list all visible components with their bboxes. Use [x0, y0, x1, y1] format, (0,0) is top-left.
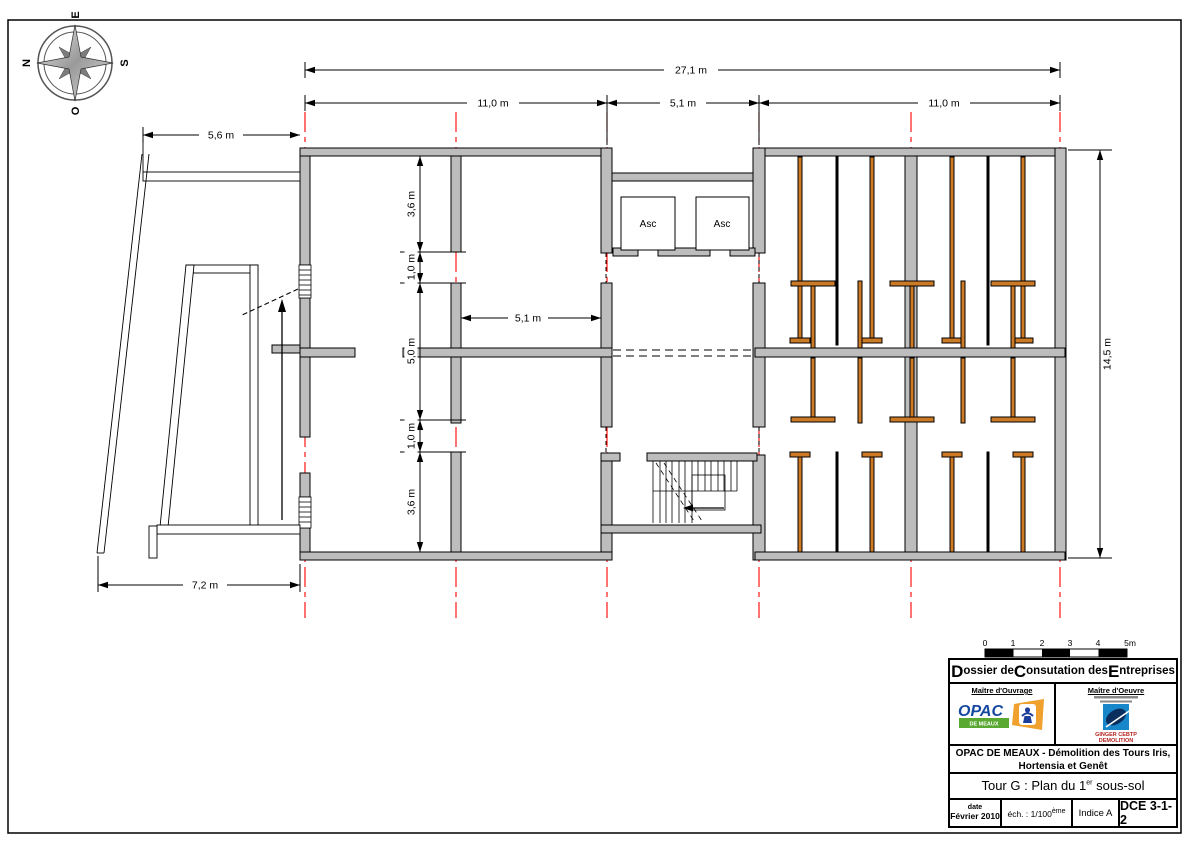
stair-direction-arrow	[683, 505, 693, 512]
dimension-labels: 27,1 m 11,0 m 5,1 m 11,0 m 5,6 m 7,2 m 1…	[183, 63, 1114, 592]
dim-bay-middle: 5,1 m	[670, 98, 697, 110]
drawing-title: Tour G : Plan du 1er sous-sol	[950, 772, 1176, 798]
compass-west-label: O	[70, 106, 82, 115]
architect-label: Maître d'Oeuvre	[1056, 686, 1176, 695]
scale-tick-3: 3	[1068, 638, 1073, 648]
header-text-3: ntreprises	[1119, 665, 1175, 677]
project-name: OPAC DE MEAUX - Démolition des Tours Iri…	[950, 744, 1176, 772]
header-text-2: onsutation des	[1026, 665, 1108, 677]
index-cell: Indice A	[1073, 800, 1120, 826]
dim-chain-door-bottom: 1,0 m	[406, 423, 418, 450]
architect-cell: Maître d'Oeuvre GINGER CEBTP DEMOLITION	[1056, 684, 1176, 744]
scale-cell: éch. : 1/100ème	[1002, 800, 1073, 826]
project-line-1: OPAC DE MEAUX - Démolition des Tours Iri…	[950, 747, 1176, 760]
scale-tick-1: 1	[1011, 638, 1016, 648]
header-initial-e: E	[1108, 663, 1119, 680]
dim-bay-left: 11,0 m	[477, 98, 509, 110]
drawing-sheet: E N S O	[0, 0, 1191, 842]
opac-logo: OPAC DE MEAUX	[956, 695, 1048, 735]
compass-rose: E N S O	[21, 11, 131, 115]
date-label: date	[968, 804, 982, 811]
stair-landing	[692, 475, 725, 510]
scale-tick-0: 0	[983, 638, 988, 648]
scale-tick-5: 5m	[1124, 638, 1136, 648]
drawing-title-pre: Tour G : Plan du 1	[981, 778, 1086, 793]
dim-ramp-top: 5,6 m	[208, 130, 235, 142]
scale-tick-2: 2	[1040, 638, 1045, 648]
ramp-direction-arrow	[240, 289, 298, 520]
header-text-1: ossier de	[963, 665, 1014, 677]
dim-overall-height: 14,5 m	[1102, 338, 1114, 370]
doc-ref-cell: DCE 3-1-2	[1120, 800, 1176, 826]
dashed-lines	[606, 253, 759, 455]
dim-overall-width: 27,1 m	[675, 65, 707, 77]
dim-chain-top: 3,6 m	[406, 191, 418, 218]
owner-label: Maître d'Ouvrage	[950, 686, 1054, 695]
dim-chain-middle: 5,0 m	[406, 338, 418, 365]
opac-logo-sub: DE MEAUX	[969, 722, 998, 728]
doc-ref-value: DCE 3-1-2	[1120, 799, 1176, 827]
elevators: Asc Asc	[621, 197, 749, 250]
owner-cell: Maître d'Ouvrage OPAC DE MEAUX	[950, 684, 1056, 744]
scale-bar: 0 1 2 3 4 5m	[983, 638, 1136, 657]
opac-logo-text: OPAC	[958, 703, 1003, 720]
compass-south-label: S	[119, 59, 131, 66]
ginger-logo-line2: DEMOLITION	[1099, 738, 1134, 743]
dim-chain-bottom: 3,6 m	[406, 489, 418, 516]
title-block: Dossier de Consutation des Entreprises M…	[948, 658, 1178, 828]
compass-east-label: E	[70, 11, 82, 18]
title-block-header: Dossier de Consutation des Entreprises	[950, 660, 1176, 684]
scale-tick-4: 4	[1096, 638, 1101, 648]
compass-north-label: N	[21, 59, 33, 67]
elevator-left-label: Asc	[640, 219, 657, 230]
ginger-logo: GINGER CEBTP DEMOLITION	[1084, 695, 1148, 743]
staircase	[653, 461, 737, 523]
header-initial-d: D	[951, 663, 963, 680]
access-ramp	[97, 130, 300, 558]
dim-chain-door-top: 1,0 m	[406, 254, 418, 281]
date-value: Février 2010	[950, 811, 1000, 821]
dim-ramp-bottom: 7,2 m	[192, 580, 219, 592]
scale-text: éch. : 1/100	[1007, 808, 1051, 818]
drawing-title-post: sous-sol	[1092, 778, 1144, 793]
header-initial-c: C	[1014, 663, 1026, 680]
index-value: Indice A	[1079, 808, 1113, 819]
elevator-right-label: Asc	[714, 219, 731, 230]
date-cell: date Février 2010	[950, 800, 1002, 826]
scale-sup: ème	[1052, 808, 1066, 815]
grid-axes	[305, 112, 1060, 618]
title-block-footer: date Février 2010 éch. : 1/100ème Indice…	[950, 798, 1176, 826]
dim-bay-right: 11,0 m	[928, 98, 960, 110]
dim-room-width: 5,1 m	[515, 313, 542, 325]
